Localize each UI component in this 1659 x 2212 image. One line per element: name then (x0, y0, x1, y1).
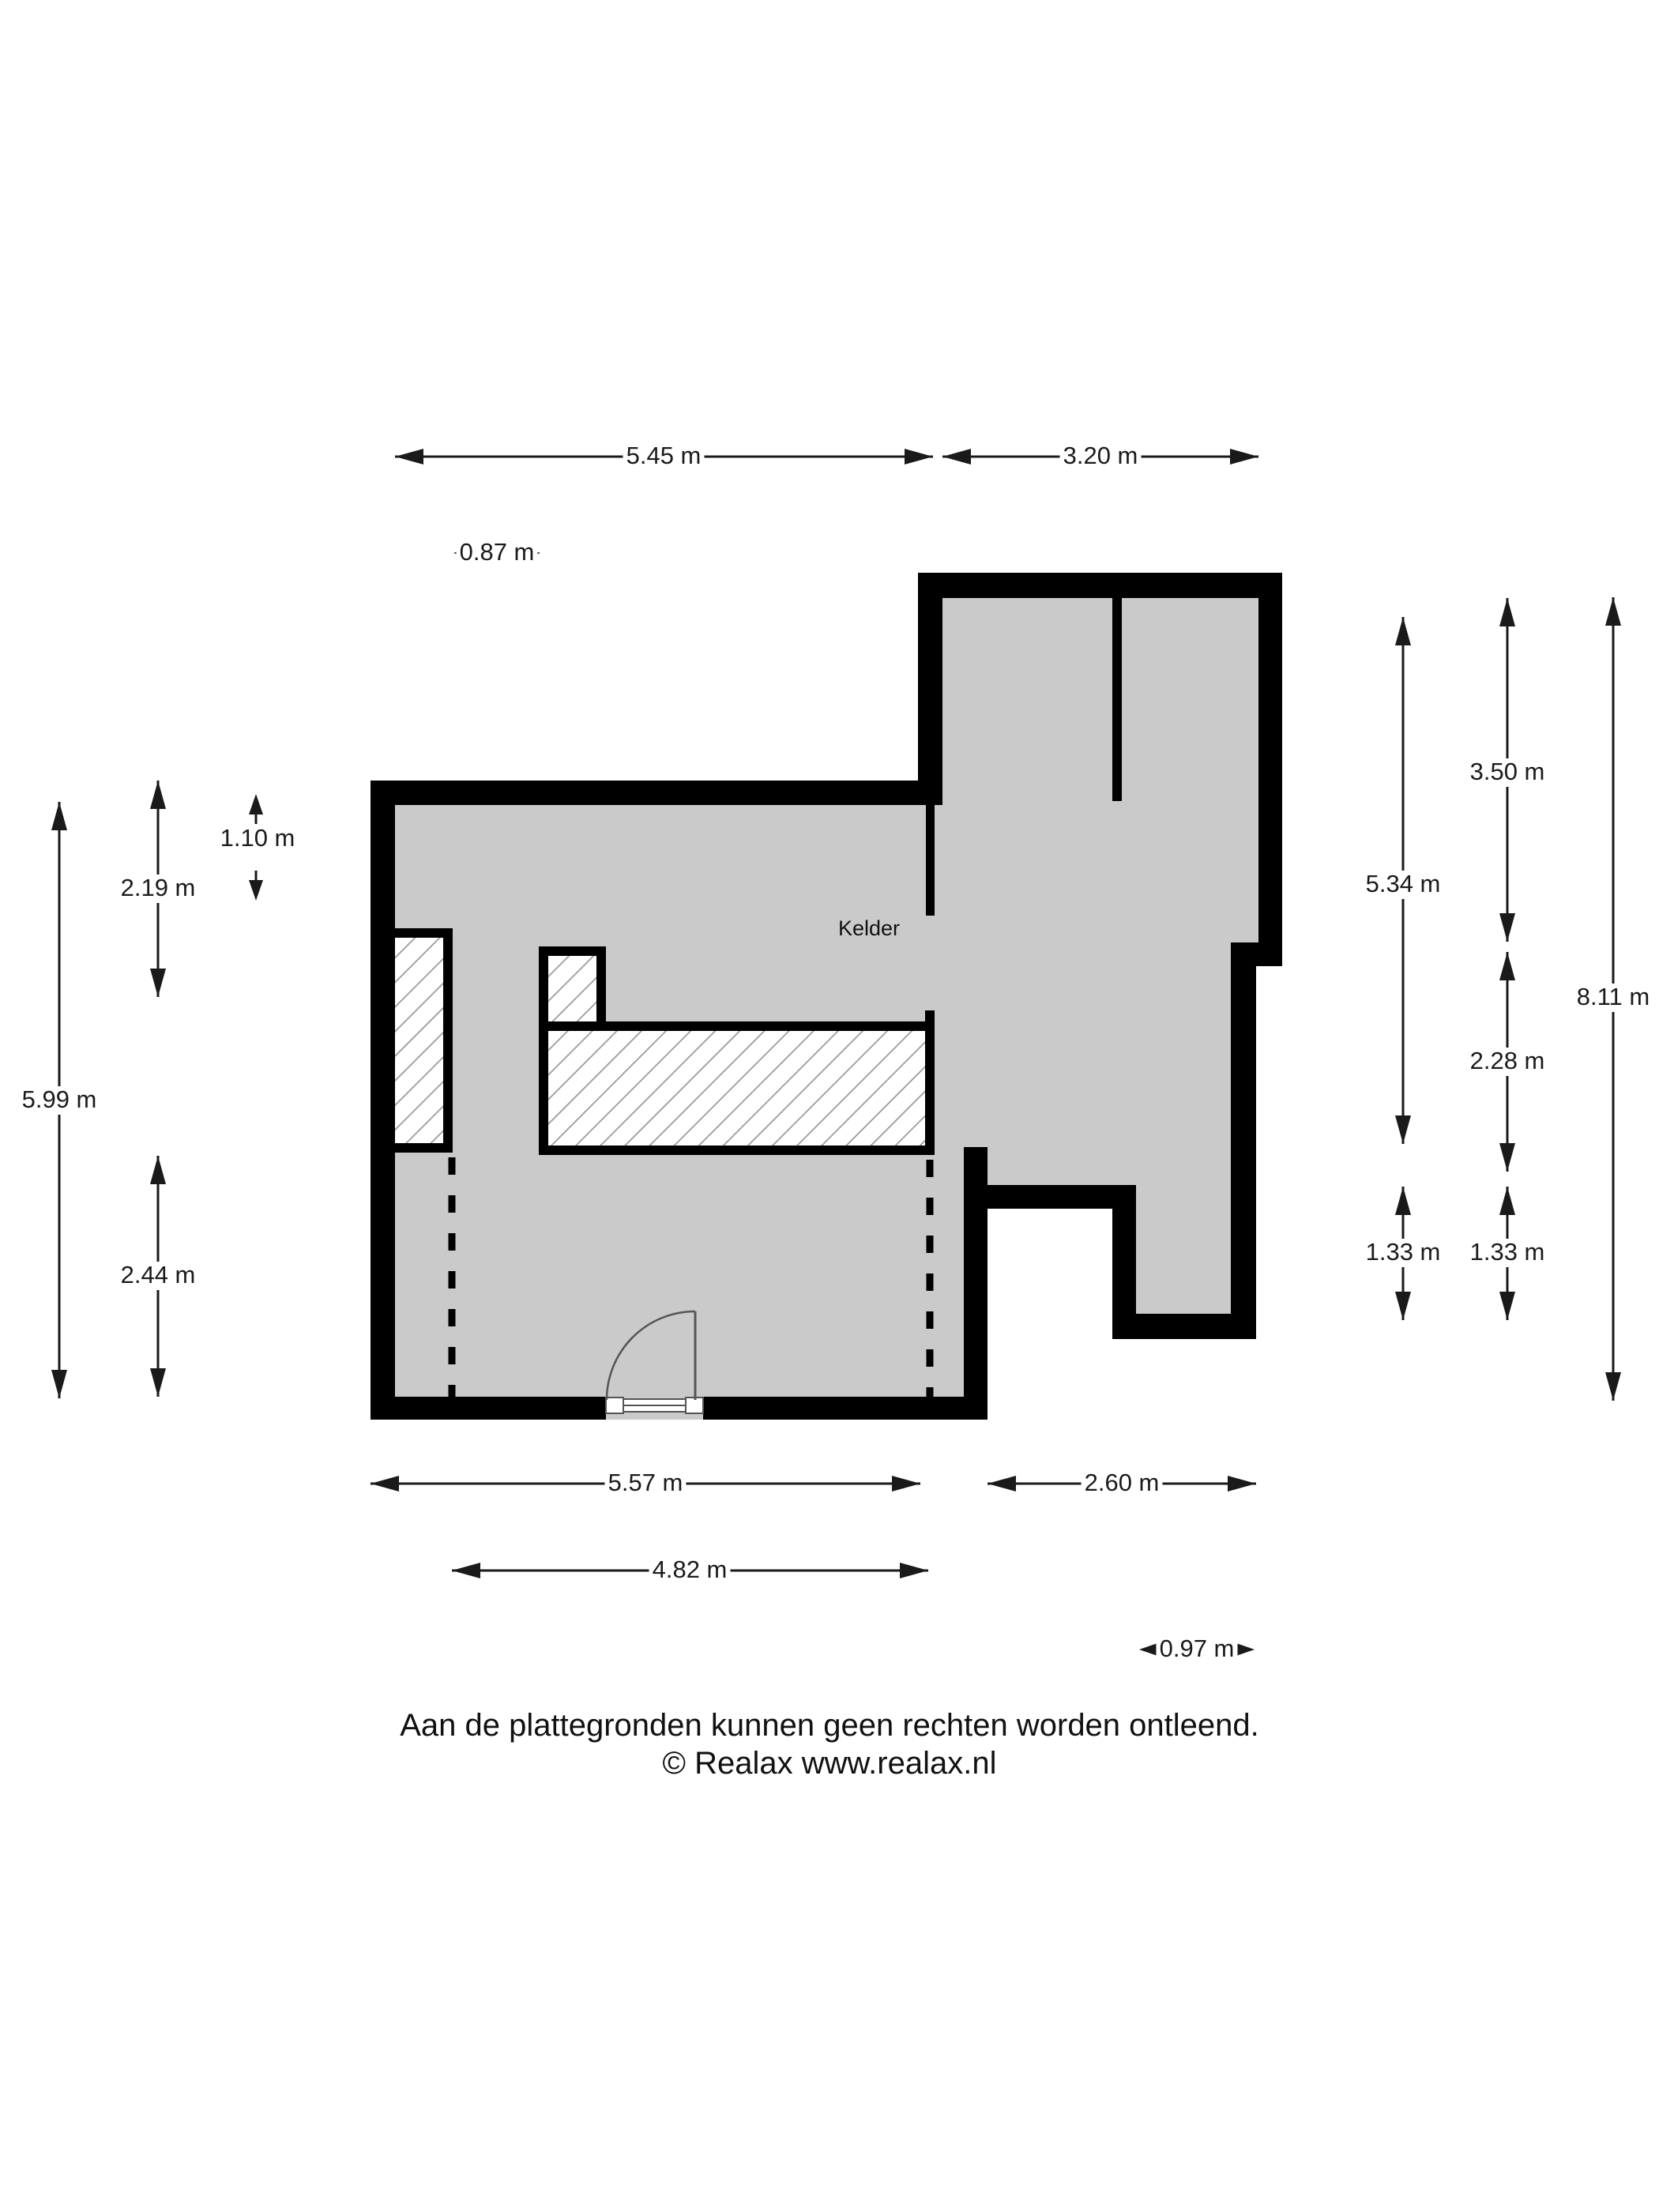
dimension-right-1-33-a-arrow (1395, 1187, 1411, 1215)
dimension-bottom-4-82-label: 4.82 m (653, 1556, 728, 1583)
wall (918, 573, 942, 805)
dimension-right-5-34-arrow (1395, 1115, 1411, 1144)
dimension-right-1-33-b-arrow (1499, 1292, 1515, 1320)
dimension-small-1-10-label: 1.10 m (220, 824, 295, 852)
dimension-bottom-5-57-arrow (371, 1476, 399, 1492)
wall (1231, 942, 1258, 966)
wall (918, 573, 1282, 598)
hatched-area (395, 938, 443, 1143)
dimension-small-1-10-arrow (249, 880, 263, 901)
wall (371, 781, 395, 1420)
object-wall (393, 1143, 453, 1153)
dimension-bottom-2-60-label: 2.60 m (1085, 1469, 1160, 1496)
wall (1231, 966, 1256, 1339)
dimension-small-1-10-arrow (249, 794, 263, 814)
wall (703, 1397, 987, 1420)
dimension-right-1-33-a-arrow (1395, 1292, 1411, 1320)
dimension-right-3-50-arrow (1499, 913, 1515, 942)
dimension-bottom-4-82-arrow (452, 1563, 480, 1578)
dimension-left-2-19-arrow (150, 969, 166, 997)
dimension-left-2-19-arrow (150, 781, 166, 809)
object-wall (539, 1021, 935, 1031)
dimension-left-2-44-arrow (150, 1368, 166, 1397)
dimension-left-2-44-arrow (150, 1156, 166, 1184)
wall (1112, 598, 1122, 801)
dimension-bottom-2-60-arrow (987, 1476, 1016, 1492)
wall (926, 805, 935, 916)
disclaimer-text: Aan de plattegronden kunnen geen rechten… (0, 1708, 1659, 1744)
dimension-bottom-4-82-arrow (900, 1563, 928, 1578)
dimension-bottom-5-57-label: 5.57 m (608, 1469, 683, 1496)
dimension-right-2-28-arrow (1499, 952, 1515, 980)
object-wall (925, 1010, 935, 1155)
hatched-area (548, 1031, 925, 1145)
room-label: Kelder (838, 916, 900, 940)
dimension-left-2-19-label: 2.19 m (121, 874, 196, 901)
wall (371, 1397, 606, 1420)
object-wall (539, 1021, 548, 1155)
object-wall (539, 946, 548, 1031)
dimension-bottom-5-57-arrow (892, 1476, 920, 1492)
dimension-left-2-44-label: 2.44 m (121, 1261, 196, 1288)
wall (1258, 573, 1282, 966)
floorplan-canvas: Kelder5.45 m3.20 m5.99 m2.19 m2.44 m5.34… (0, 0, 1659, 2212)
dimension-top-5-45-label: 5.45 m (626, 442, 702, 469)
wall (1112, 1314, 1256, 1339)
object-wall (596, 946, 606, 1021)
dimension-top-5-45-arrow (395, 449, 423, 465)
dimension-left-5-99-label: 5.99 m (22, 1085, 97, 1113)
object-wall (539, 946, 606, 956)
door-jamb (606, 1398, 623, 1413)
dimension-top-3-20-label: 3.20 m (1063, 442, 1138, 469)
dimension-right-2-28-arrow (1499, 1143, 1515, 1172)
dimension-top-5-45-arrow (905, 449, 933, 465)
object-wall (539, 1145, 935, 1155)
dimension-right-3-50-label: 3.50 m (1470, 758, 1545, 785)
dimension-right-5-34-arrow (1395, 617, 1411, 645)
dimension-right-8-11-arrow (1605, 597, 1621, 626)
dimension-right-8-11-arrow (1605, 1372, 1621, 1401)
dimension-top-3-20-arrow (1230, 449, 1258, 465)
dimension-right-1-33-a-label: 1.33 m (1366, 1238, 1441, 1266)
dimension-right-1-33-b-arrow (1499, 1187, 1515, 1215)
dimension-right-1-33-b-label: 1.33 m (1470, 1238, 1545, 1266)
floorplan-svg: Kelder5.45 m3.20 m5.99 m2.19 m2.44 m5.34… (0, 0, 1659, 2212)
dimension-bottom-2-60-arrow (1228, 1476, 1256, 1492)
hatched-area (548, 956, 596, 1021)
dimension-top-3-20-arrow (942, 449, 971, 465)
dimension-left-5-99-arrow (51, 802, 67, 830)
wall (371, 781, 942, 805)
dimension-right-3-50-arrow (1499, 598, 1515, 626)
object-wall (443, 928, 453, 1153)
dimension-small-0-97-label: 0.97 m (1160, 1635, 1235, 1662)
dimension-small-0-87-label: 0.87 m (460, 538, 535, 566)
dimension-left-5-99-arrow (51, 1370, 67, 1398)
floor-area (918, 573, 1282, 966)
dimension-right-8-11-label: 8.11 m (1577, 983, 1650, 1010)
copyright-text: © Realax www.realax.nl (0, 1746, 1659, 1781)
dimension-right-2-28-label: 2.28 m (1470, 1047, 1545, 1074)
dimension-right-5-34-label: 5.34 m (1366, 870, 1441, 897)
wall (964, 1147, 987, 1420)
